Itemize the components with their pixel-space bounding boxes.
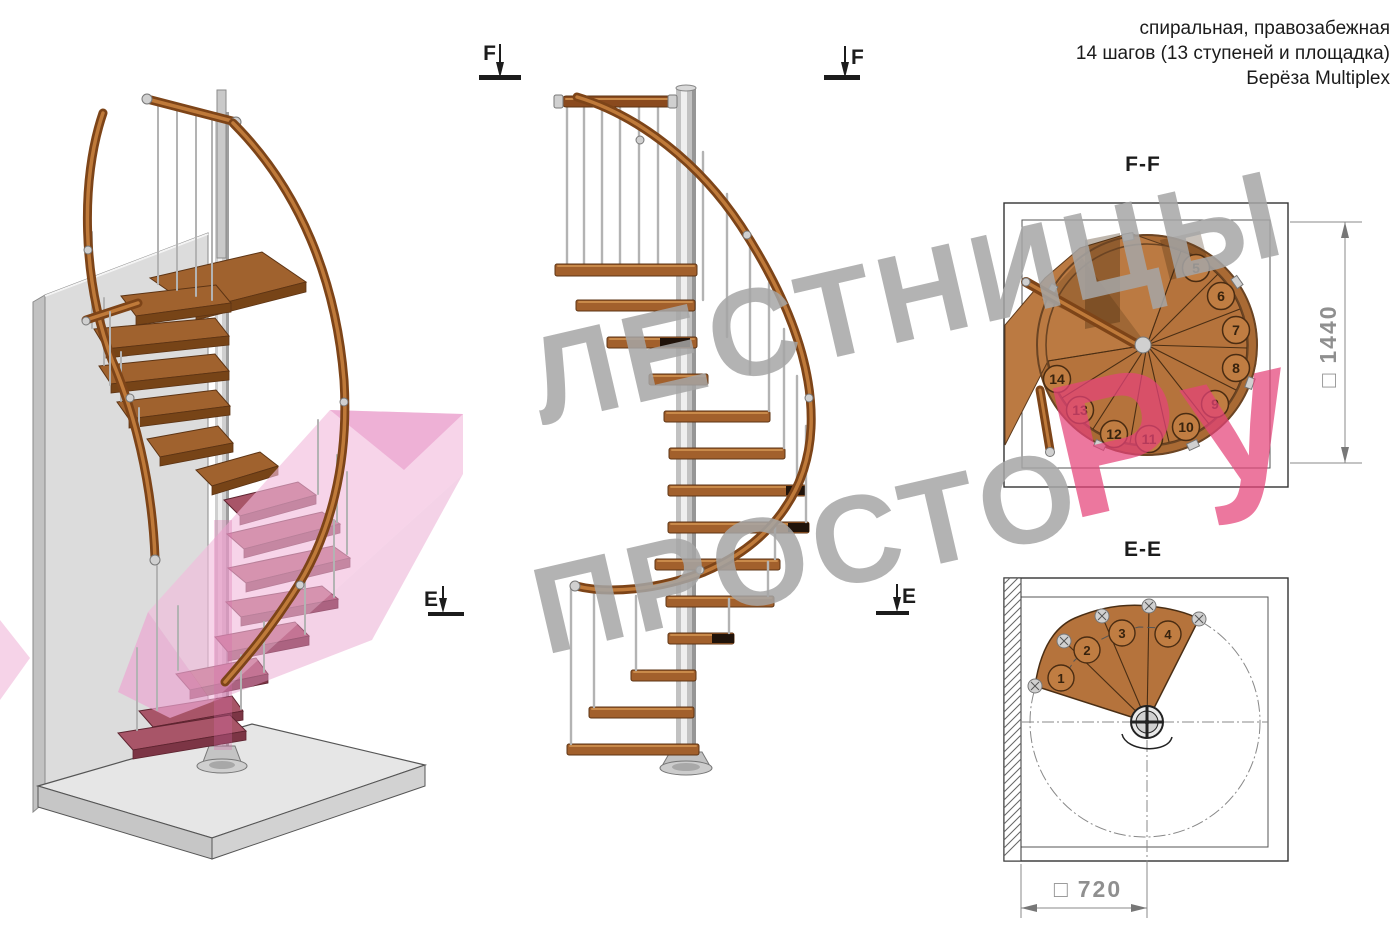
step-number: 3 [1118, 626, 1125, 641]
dim-arrow [1341, 222, 1349, 238]
handrail-sleeve [296, 581, 304, 589]
dim-text: □720 [1054, 876, 1122, 902]
dim-arrow [1341, 447, 1349, 463]
section-marker-e-left: E [424, 586, 464, 616]
handrail-sleeve [805, 394, 813, 402]
section-marker-f-right: F [824, 46, 864, 80]
marker-letter: F [851, 46, 864, 69]
header-line-3: Берёза Multiplex [1246, 68, 1390, 89]
handrail-end-cap [150, 555, 160, 565]
dim-text: □1440 [1315, 304, 1341, 387]
step-number: 1 [1057, 671, 1064, 686]
staircase-drawing: E [0, 0, 1400, 940]
handrail-sleeve [126, 394, 134, 402]
plan-view-ee: E-E 1 [1004, 538, 1288, 918]
marker-letter: E [424, 588, 438, 611]
handrail-sleeve [743, 231, 751, 239]
ee-wall-hatch [1004, 578, 1021, 861]
handrail-sleeve [636, 136, 644, 144]
step-number: 2 [1083, 643, 1090, 658]
step-number: 4 [1164, 627, 1172, 642]
handrail-sleeve [340, 398, 348, 406]
gallery-rail-elevation [554, 95, 677, 264]
rail-end-cap [142, 94, 152, 104]
header-line-1: спиральная, правозабежная [1140, 18, 1390, 39]
dim-arrow [1131, 904, 1147, 912]
marker-arrow [439, 598, 447, 613]
section-marker-f-left: F [479, 42, 521, 80]
view-3d-staircase: E [0, 90, 464, 859]
header-line-2: 14 шагов (13 ступеней и площадка) [1076, 43, 1390, 64]
handrail-sleeve [84, 246, 92, 254]
marker-letter: F [483, 42, 496, 65]
header-info: спиральная, правозабежная 14 шагов (13 с… [1076, 18, 1391, 89]
technical-drawing-page: E [0, 0, 1400, 940]
dimension-720: □720 [1021, 864, 1147, 918]
dim-arrow [1021, 904, 1037, 912]
